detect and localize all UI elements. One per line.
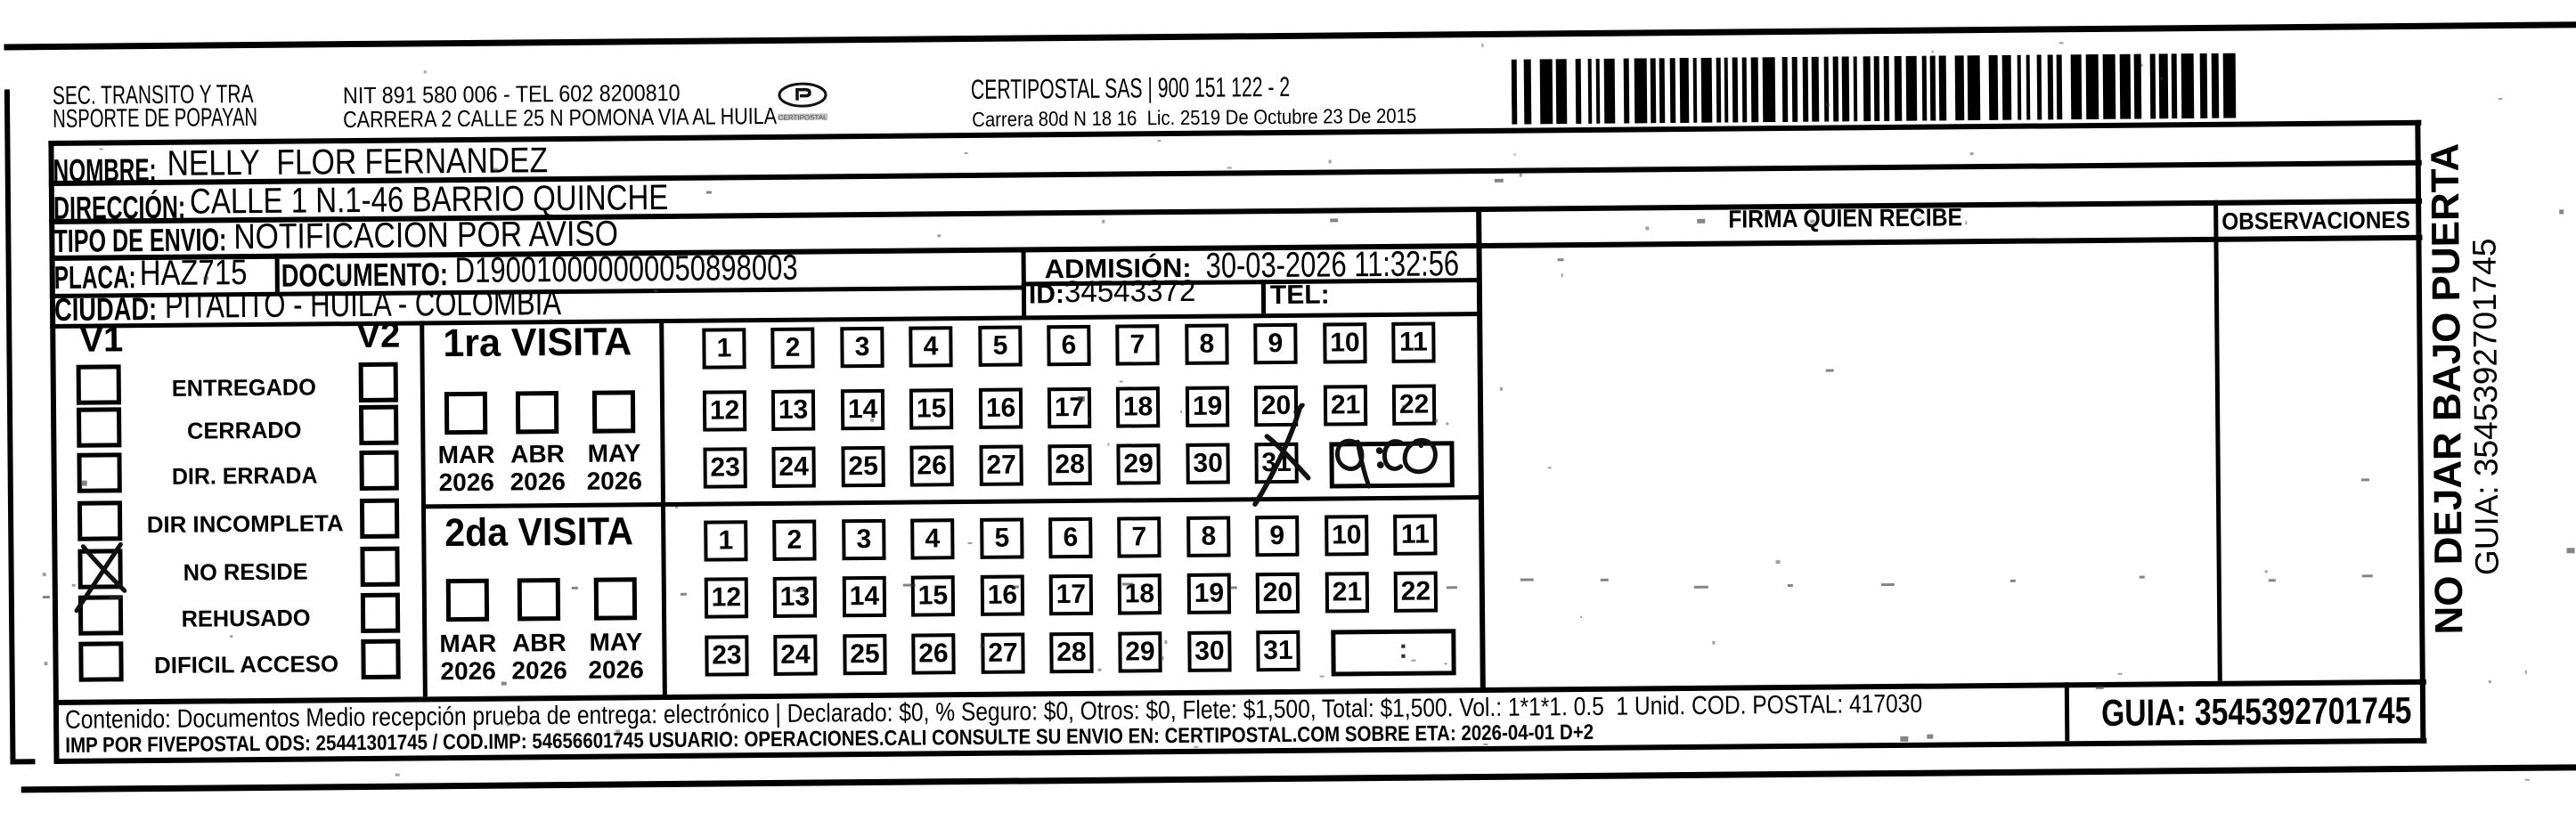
svg-text:CERTIPOSTAL: CERTIPOSTAL — [779, 113, 827, 121]
